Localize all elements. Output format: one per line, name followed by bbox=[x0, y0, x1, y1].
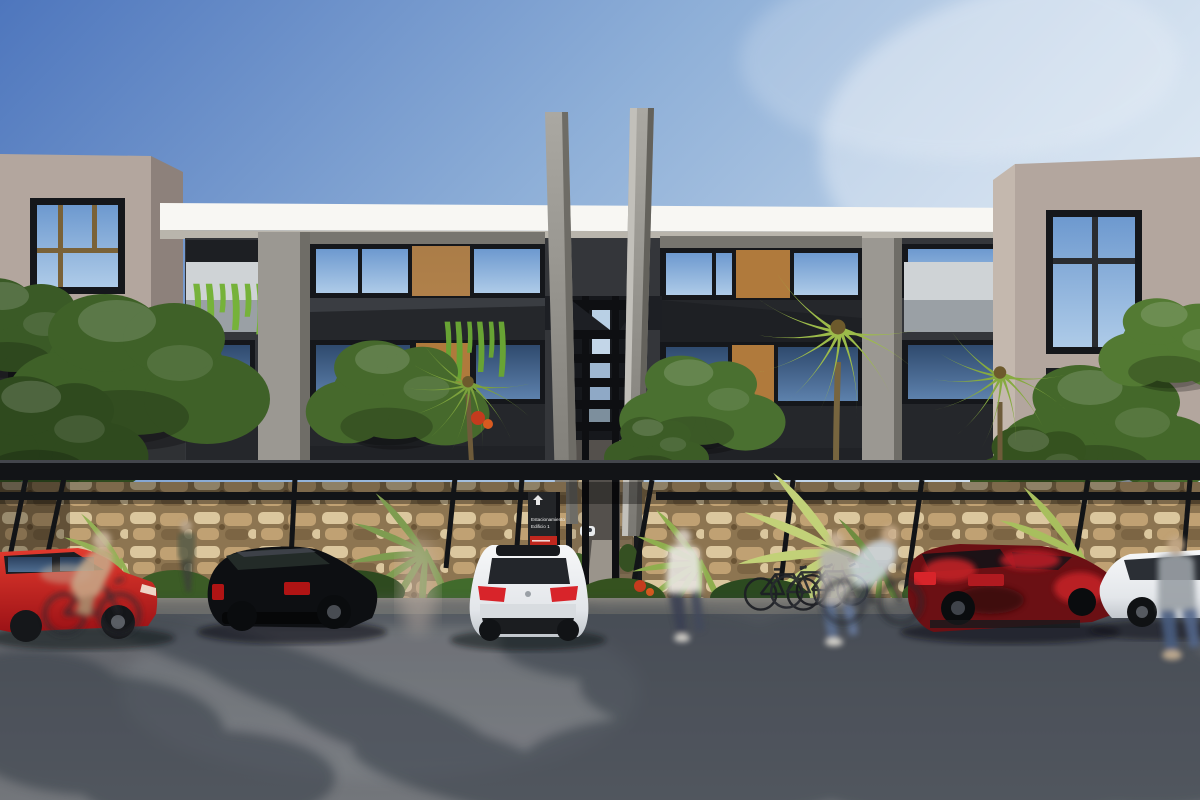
ghost-pedestrian bbox=[398, 537, 438, 633]
left-tower-window bbox=[30, 198, 125, 294]
roof-slab bbox=[160, 203, 1030, 232]
architectural-render: Estacionamiento Edificio 1 bbox=[0, 0, 1200, 800]
sign-line-1: Estacionamiento bbox=[531, 517, 565, 522]
scene-canvas: Estacionamiento Edificio 1 bbox=[0, 0, 1200, 800]
sign-line-2: Edificio 1 bbox=[531, 524, 550, 529]
